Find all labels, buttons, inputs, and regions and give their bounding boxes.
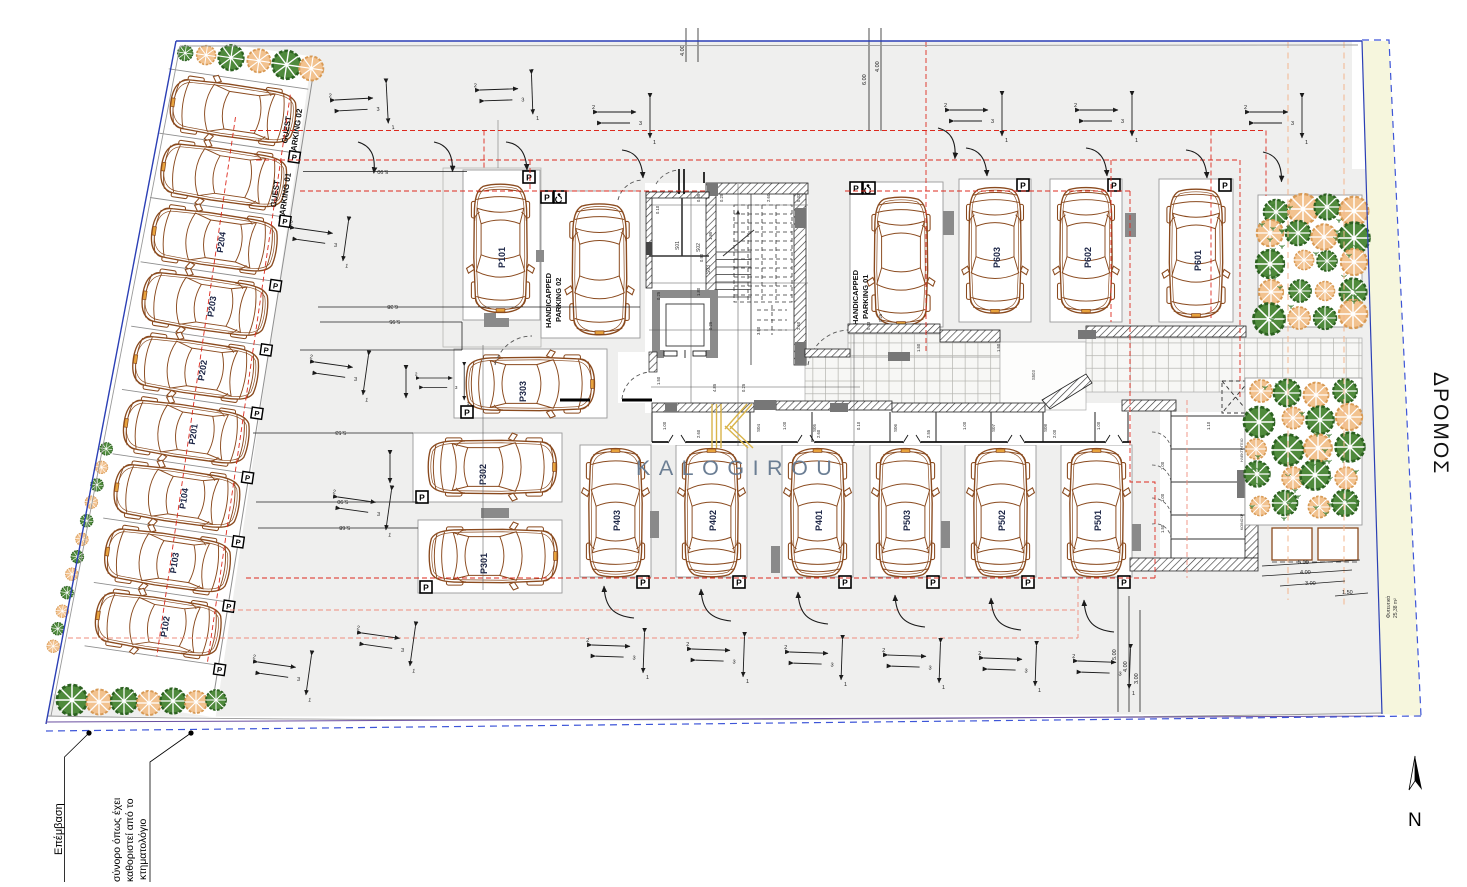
svg-text:3.00: 3.00	[1134, 673, 1140, 684]
svg-text:6.38: 6.38	[387, 303, 398, 309]
svg-text:5.90: 5.90	[337, 498, 348, 504]
svg-text:1.00: 1.00	[1096, 421, 1101, 430]
svg-text:κτηματολόγιο: κτηματολόγιο	[137, 818, 149, 880]
svg-text:P101: P101	[497, 247, 507, 268]
svg-text:1.50: 1.50	[916, 343, 921, 352]
svg-text:1.00: 1.00	[662, 421, 667, 430]
svg-text:PARKING 02: PARKING 02	[554, 278, 563, 322]
svg-text:P603: P603	[992, 247, 1002, 268]
svg-text:0.33: 0.33	[866, 321, 871, 330]
svg-text:1.00: 1.00	[782, 421, 787, 430]
svg-text:1.00: 1.00	[962, 421, 967, 430]
svg-text:4.85: 4.85	[712, 383, 717, 392]
svg-text:0.10: 0.10	[655, 205, 660, 214]
svg-text:3.50: 3.50	[756, 326, 761, 335]
svg-text:1.00: 1.00	[1160, 493, 1165, 502]
svg-text:P401: P401	[814, 510, 824, 531]
svg-text:4.00: 4.00	[1123, 661, 1129, 672]
svg-text:ΗΛΕΚΤΡ/ΓΕΙΟ: ΗΛΕΚΤΡ/ΓΕΙΟ	[1240, 438, 1244, 462]
svg-text:1.50: 1.50	[1342, 590, 1353, 596]
svg-text:4.00: 4.00	[680, 45, 686, 56]
svg-text:2.60: 2.60	[796, 321, 801, 330]
svg-text:P501: P501	[1093, 510, 1103, 531]
svg-text:2.55: 2.55	[926, 429, 931, 438]
svg-text:5.68: 5.68	[339, 524, 350, 530]
svg-text:KALOGIROU: KALOGIROU	[636, 456, 840, 480]
svg-text:3.00: 3.00	[1305, 581, 1316, 587]
svg-text:P402: P402	[708, 510, 718, 531]
svg-text:S02: S02	[696, 243, 702, 252]
svg-text:1.10: 1.10	[1206, 421, 1211, 430]
svg-text:0.90: 0.90	[699, 253, 704, 262]
svg-text:1.50: 1.50	[656, 376, 661, 385]
svg-text:PARKING 01: PARKING 01	[861, 275, 870, 319]
svg-text:0.25: 0.25	[656, 291, 661, 300]
svg-text:S07: S07	[991, 423, 996, 432]
svg-text:ΚΟΙΝΟΧΡ: ΚΟΙΝΟΧΡ	[1240, 513, 1244, 530]
svg-text:2.60: 2.60	[816, 429, 821, 438]
svg-text:0.33: 0.33	[796, 193, 801, 202]
svg-text:P601: P601	[1193, 250, 1203, 271]
svg-text:P303: P303	[518, 381, 528, 402]
svg-text:ΔΡΟΜΟΣ: ΔΡΟΜΟΣ	[1429, 372, 1452, 475]
svg-text:1.50: 1.50	[1160, 524, 1165, 533]
svg-text:0.25: 0.25	[741, 383, 746, 392]
svg-text:σύνορο όπως έχει: σύνορο όπως έχει	[111, 797, 123, 882]
svg-text:4.00: 4.00	[875, 61, 881, 72]
svg-text:S06: S06	[893, 423, 898, 432]
svg-text:25,38 m²: 25,38 m²	[1393, 598, 1399, 618]
svg-text:P602: P602	[1083, 247, 1093, 268]
svg-text:P403: P403	[612, 510, 622, 531]
svg-text:4.00: 4.00	[1300, 570, 1311, 576]
svg-text:N: N	[1408, 810, 1422, 831]
svg-text:καθοριστεί από το: καθοριστεί από το	[124, 798, 136, 882]
svg-text:S04: S04	[756, 423, 761, 432]
svg-text:0.95: 0.95	[696, 193, 701, 202]
svg-text:P502: P502	[997, 510, 1007, 531]
svg-text:1.95: 1.95	[708, 231, 713, 240]
svg-text:P301: P301	[479, 553, 489, 574]
svg-text:S01: S01	[675, 241, 681, 250]
svg-text:0.25: 0.25	[708, 321, 713, 330]
svg-text:HANDICAPPED: HANDICAPPED	[544, 272, 553, 328]
svg-text:5.00: 5.00	[1298, 560, 1309, 566]
svg-text:2.60: 2.60	[696, 429, 701, 438]
svg-text:0.25: 0.25	[878, 313, 883, 322]
svg-text:2.60: 2.60	[766, 193, 771, 202]
svg-text:5.00: 5.00	[1112, 649, 1118, 660]
svg-text:P503: P503	[902, 510, 912, 531]
svg-text:5.53: 5.53	[335, 429, 346, 435]
svg-text:0.10: 0.10	[856, 421, 861, 430]
svg-text:Επέμβαση: Επέμβαση	[53, 803, 65, 855]
svg-text:1.80: 1.80	[696, 287, 701, 296]
svg-text:Φυτευτικά: Φυτευτικά	[1385, 596, 1392, 618]
svg-text:1.50: 1.50	[996, 343, 1001, 352]
svg-text:6.00: 6.00	[862, 74, 868, 85]
svg-text:S03: S03	[706, 265, 712, 274]
svg-text:5.90: 5.90	[377, 168, 388, 174]
svg-text:HANDICAPPED: HANDICAPPED	[851, 269, 860, 325]
svg-text:2.00: 2.00	[1052, 429, 1057, 438]
svg-text:0.25: 0.25	[719, 193, 724, 202]
svg-text:S08: S08	[1043, 423, 1048, 432]
svg-text:S503: S503	[1031, 370, 1036, 380]
svg-text:1.00: 1.00	[1160, 461, 1165, 470]
svg-text:5.95: 5.95	[389, 318, 400, 324]
